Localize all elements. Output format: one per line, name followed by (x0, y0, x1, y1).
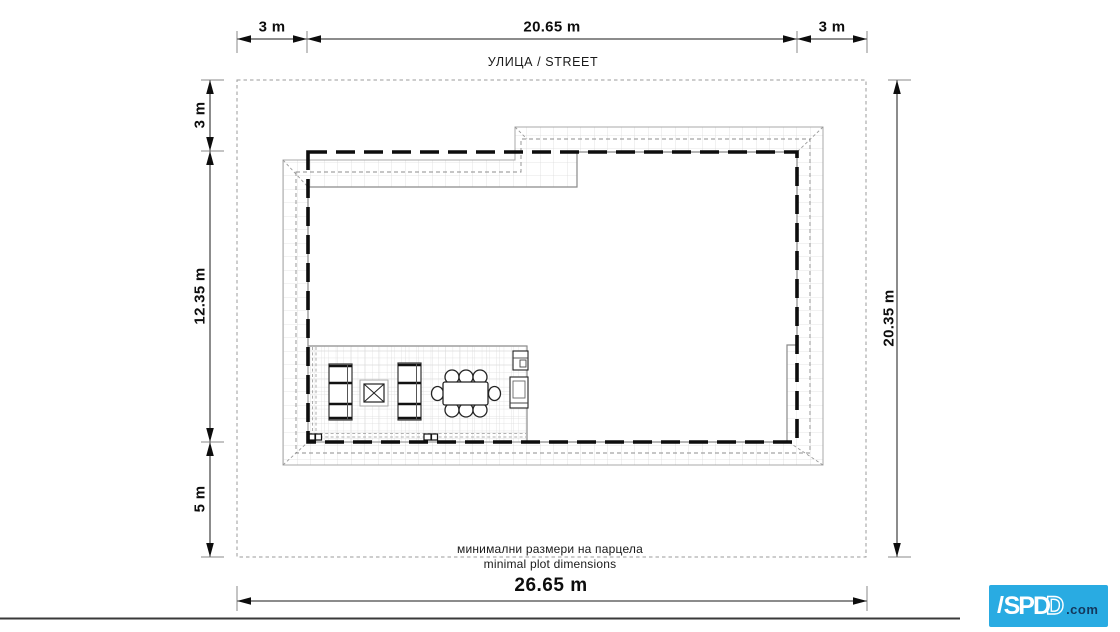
dim-label-left-upper: 3 m (192, 102, 209, 129)
spd-logo-text: SPD (999, 594, 1049, 619)
caption-bulgarian: минимални размери на парцела (457, 542, 643, 556)
plan-drawing (0, 0, 1120, 632)
dim-label-top-left: 3 m (259, 19, 286, 36)
caption-english: minimal plot dimensions (484, 557, 617, 571)
dim-label-left-lower: 5 m (192, 486, 209, 513)
spd-logo-suffix: .com (1066, 602, 1098, 617)
kitchen-unit (510, 351, 528, 408)
spd-logo-outline-letter: D (1046, 594, 1064, 619)
sofa-left (329, 364, 352, 420)
dim-label-top-right: 3 m (819, 19, 846, 36)
dim-label-right: 20.35 m (881, 289, 898, 346)
dim-label-left-middle: 12.35 m (192, 267, 209, 324)
dim-label-top-center: 20.65 m (523, 19, 580, 36)
dim-label-bottom: 26.65 m (514, 575, 587, 597)
street-label: УЛИЦА / STREET (488, 55, 598, 69)
site-plan-canvas: 3 m 20.65 m 3 m УЛИЦА / STREET 3 m 12.35… (0, 0, 1120, 632)
spd-logo: SPDD.com (989, 585, 1108, 627)
coffee-table (360, 380, 388, 406)
sofa-right (398, 363, 421, 420)
